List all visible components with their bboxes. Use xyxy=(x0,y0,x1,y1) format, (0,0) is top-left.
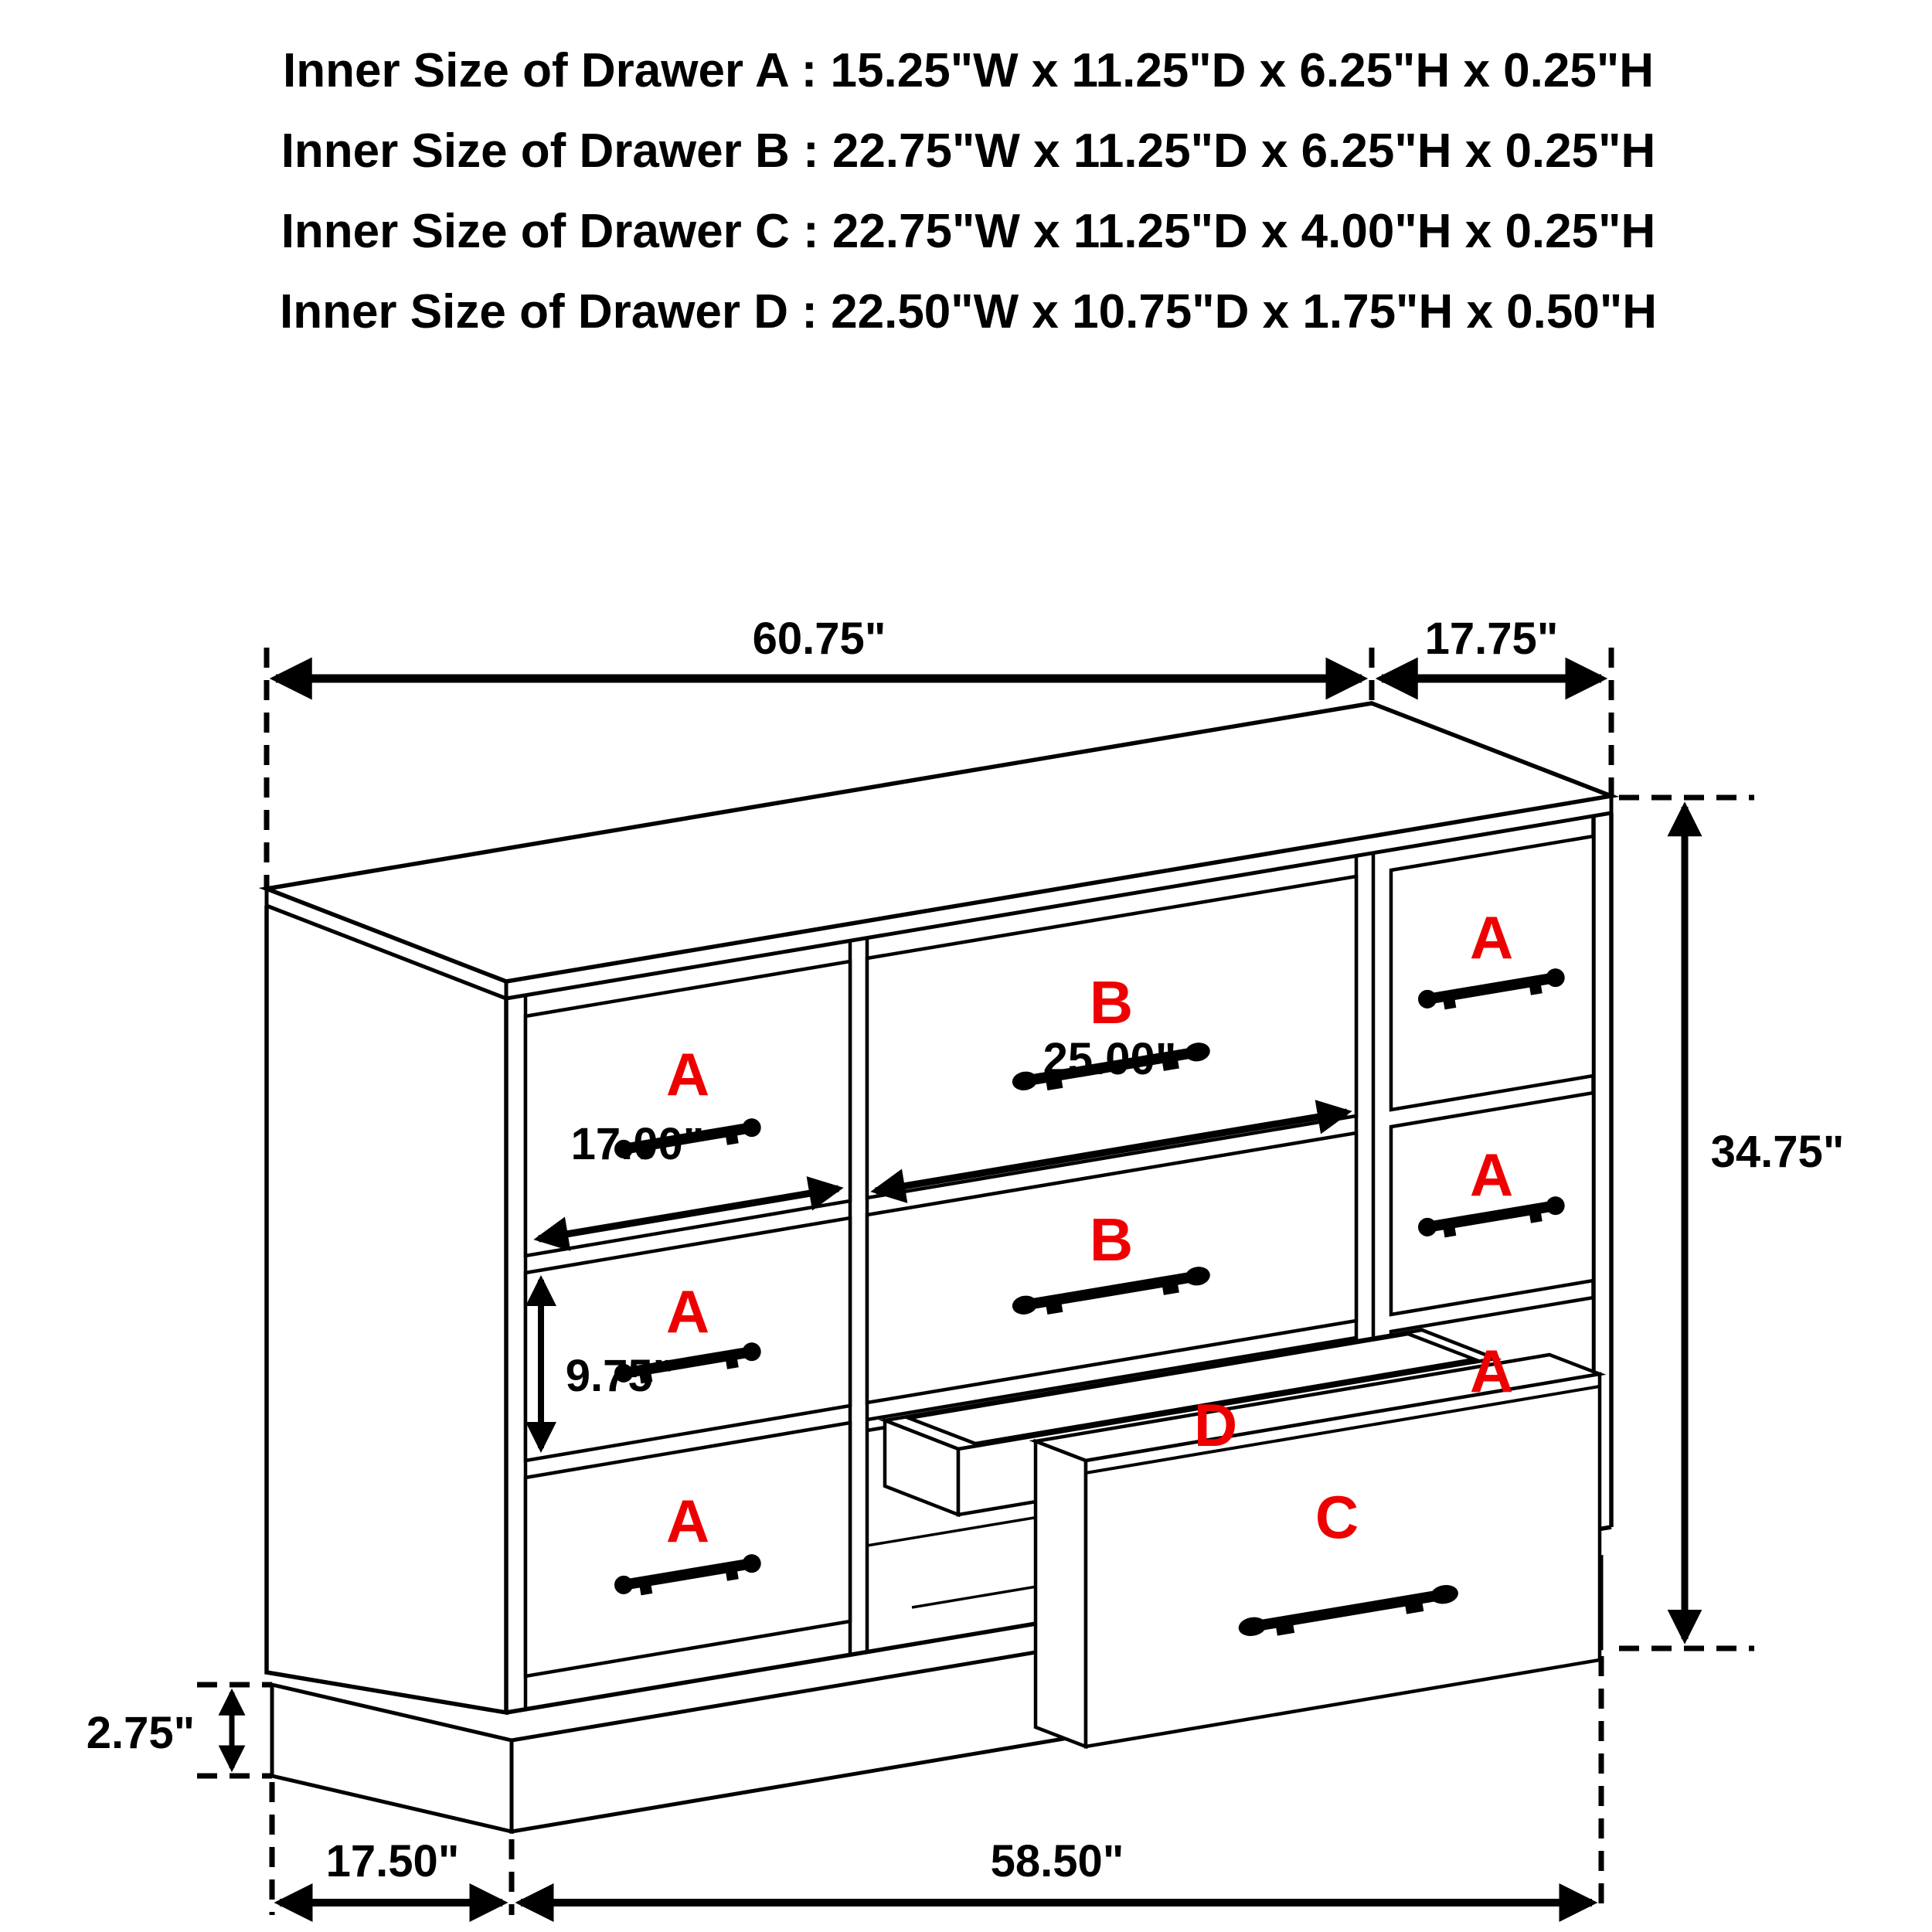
label-drawer-a4: A xyxy=(1470,903,1513,971)
cabinet-left-side-panel xyxy=(267,906,506,1713)
dim-top-depth-label: 17.75" xyxy=(1425,614,1559,664)
drawer-c-left-face xyxy=(1036,1441,1086,1747)
dresser-dimension-diagram: Inner Size of Drawer A : 15.25"W x 11.25… xyxy=(0,0,1932,1932)
dim-top-width-label: 60.75" xyxy=(753,614,886,664)
dim-base-depth-label: 17.50" xyxy=(326,1836,460,1886)
dim-drawer-a-width-label: 17.00" xyxy=(571,1119,705,1169)
dim-drawer-a-height-label: 9.75" xyxy=(566,1351,674,1401)
label-drawer-c: C xyxy=(1315,1483,1359,1551)
dim-base-height-label: 2.75" xyxy=(87,1708,195,1758)
inner-size-line-d: Inner Size of Drawer D : 22.50"W x 10.75… xyxy=(280,285,1657,338)
inner-size-line-a: Inner Size of Drawer A : 15.25"W x 11.25… xyxy=(283,44,1654,97)
center-left-stile xyxy=(850,937,867,1655)
label-drawer-a6: A xyxy=(1470,1337,1513,1405)
label-drawer-a1: A xyxy=(666,1040,709,1108)
dim-base-width-label: 58.50" xyxy=(991,1836,1124,1886)
dim-drawer-b-width-label: 25.00" xyxy=(1043,1034,1177,1084)
label-drawer-a3: A xyxy=(666,1487,709,1555)
diagram-canvas: Inner Size of Drawer A : 15.25"W x 11.25… xyxy=(0,0,1932,1932)
label-drawer-b1: B xyxy=(1090,968,1133,1036)
label-drawer-a5: A xyxy=(1470,1141,1513,1209)
inner-size-header: Inner Size of Drawer A : 15.25"W x 11.25… xyxy=(280,44,1657,338)
label-drawer-b2: B xyxy=(1090,1206,1133,1274)
inner-size-line-c: Inner Size of Drawer C : 22.75"W x 11.25… xyxy=(281,205,1656,258)
label-drawer-d: D xyxy=(1194,1391,1237,1459)
inner-size-line-b: Inner Size of Drawer B : 22.75"W x 11.25… xyxy=(281,124,1656,178)
dim-height-label: 34.75" xyxy=(1711,1127,1845,1177)
label-drawer-a2: A xyxy=(666,1277,709,1345)
